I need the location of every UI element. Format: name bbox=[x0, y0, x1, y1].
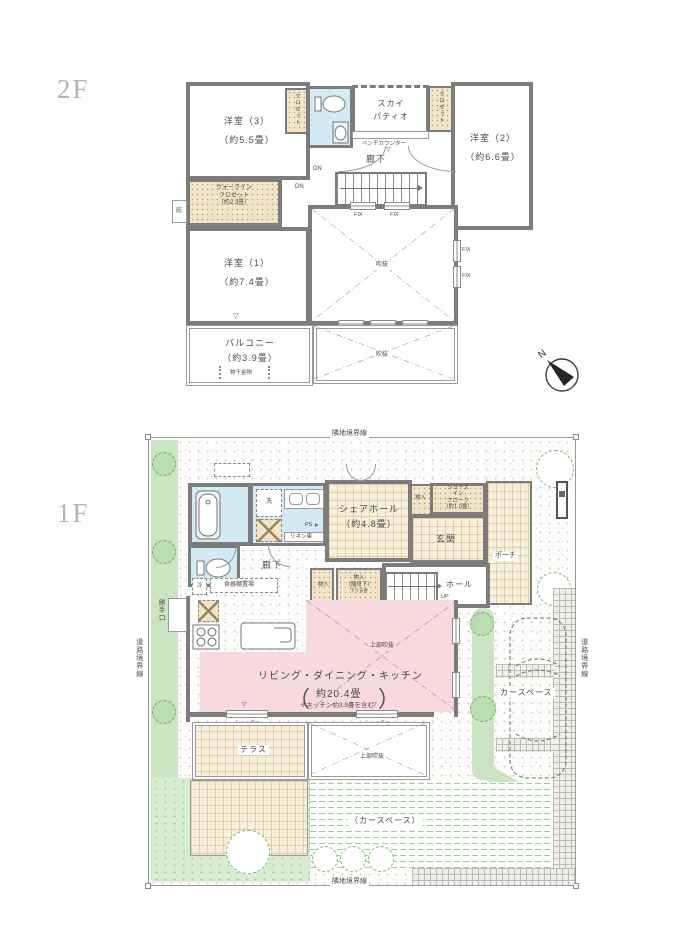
walk-in-closet-label: ウォークイン クロゼット （約2.3畳） bbox=[196, 185, 272, 208]
room-yoshitsu2-size: （約6.6畳） bbox=[458, 152, 528, 163]
laundry-pole-mark bbox=[219, 366, 221, 379]
gate-post bbox=[556, 481, 568, 519]
storage-label: 物入 bbox=[318, 582, 329, 589]
stairs-2f-arrow bbox=[340, 188, 418, 189]
dish-shelf-outline: 食器棚置場 bbox=[210, 578, 278, 593]
room-yoshitsu2-name: 洋室（2） bbox=[458, 133, 528, 144]
sky-patio-line2: パティオ bbox=[360, 112, 422, 122]
stairs-1f bbox=[384, 572, 438, 602]
ldk-name-label: リビング・ダイニング・キッチン bbox=[258, 671, 423, 684]
boundary-label-bottom: 隣地境界線 bbox=[330, 878, 369, 887]
dish-shelf-label: 食器棚置場 bbox=[224, 582, 254, 590]
bathroom bbox=[188, 483, 252, 546]
share-hall-size: （約4.8畳） bbox=[332, 519, 406, 530]
fix-label: FIX bbox=[462, 247, 471, 254]
washbasin-icon-2f bbox=[332, 121, 350, 145]
wic-line2: クロゼット bbox=[196, 193, 272, 201]
bush-tree bbox=[368, 846, 394, 872]
dn-label-2: DN bbox=[295, 184, 304, 192]
eave-box: 庇 bbox=[172, 200, 187, 223]
storage-share-hall: 物入 bbox=[410, 484, 432, 516]
void-upper-label: 吹抜 bbox=[374, 262, 390, 270]
fridge-outline: 冷 bbox=[192, 578, 207, 595]
lowered-ceiling-label: 下り天井 bbox=[339, 588, 379, 593]
window-triangle-2f: ▽ bbox=[233, 313, 238, 322]
bench-triangle-mark: ▽ bbox=[386, 147, 391, 155]
bush bbox=[152, 452, 176, 476]
bush bbox=[152, 700, 176, 724]
fix-window bbox=[384, 202, 410, 210]
bush-tree bbox=[312, 846, 338, 872]
sic-line4: （約1.0畳） bbox=[434, 504, 482, 510]
share-hall-label: シェアホール （約4.8畳） bbox=[332, 504, 406, 531]
wic-line3: （約2.3畳） bbox=[196, 200, 272, 208]
stairs-2f bbox=[335, 172, 427, 206]
washer-label: 洗 bbox=[266, 499, 272, 507]
room-yoshitsu1-name: 洋室（1） bbox=[204, 258, 290, 269]
room-yoshitsu2-label: 洋室（2） （約6.6畳） bbox=[458, 133, 528, 164]
closet-left-label: クロゼット bbox=[293, 93, 300, 126]
ldk-note-label: ※キッチン約3.8畳を含む bbox=[300, 702, 374, 710]
boundary-label-left: 道路境界線 bbox=[134, 638, 143, 678]
vanity-counter bbox=[284, 489, 324, 509]
room-yoshitsu1-label: 洋室（1） （約7.4畳） bbox=[204, 258, 290, 289]
bench-counter bbox=[352, 131, 429, 139]
boundary-corner-marker bbox=[573, 434, 579, 440]
bush bbox=[152, 540, 176, 564]
room-yoshitsu1-size: （約7.4畳） bbox=[204, 277, 290, 288]
linen-cabinet: リネン庫 bbox=[284, 532, 324, 542]
sky-patio-label: スカイ パティオ bbox=[360, 99, 422, 122]
fix-window bbox=[453, 240, 461, 262]
floor-label-2f: 2F bbox=[57, 74, 90, 105]
closet-right: クロゼット bbox=[428, 86, 453, 132]
ps-arrow-icon bbox=[315, 523, 319, 527]
ldk-size-label: 約20.4畳 bbox=[316, 689, 361, 702]
room-yoshitsu3-size: （約5.5畳） bbox=[204, 135, 290, 146]
storage-label: 物入 bbox=[339, 575, 379, 582]
water-heater-outline bbox=[214, 463, 250, 477]
porch-label: ポーチ bbox=[493, 552, 518, 561]
eave-label: 庇 bbox=[176, 208, 182, 216]
tree bbox=[226, 830, 270, 874]
stove-icon bbox=[192, 624, 220, 650]
genkan-label: 玄関 bbox=[436, 534, 456, 545]
storage-under-stairs: 物入 （階段下） 下り天井 bbox=[336, 568, 382, 604]
fix-window bbox=[350, 202, 376, 210]
toilet-icon-2f bbox=[314, 93, 348, 115]
bush bbox=[470, 612, 494, 636]
washroom: 洗 リネン庫 PS bbox=[250, 483, 326, 546]
closet-left: クロゼット bbox=[285, 88, 308, 134]
mailbox-icon bbox=[559, 491, 565, 497]
window-shutter bbox=[226, 710, 268, 718]
car-space-paren-label: （カースペース） bbox=[348, 816, 423, 826]
car-outline-icon bbox=[506, 614, 572, 782]
window bbox=[452, 618, 460, 644]
terrace-void bbox=[308, 722, 430, 780]
bush-tree bbox=[340, 846, 366, 872]
hall-label: ホール bbox=[446, 580, 473, 590]
shoes-in-closet-label: シューズ イン クローク （約1.0畳） bbox=[434, 485, 482, 510]
stairs-2f-arrowhead bbox=[418, 185, 423, 191]
window-triangle: ▽ bbox=[242, 702, 247, 710]
boundary-corner-marker bbox=[145, 883, 151, 889]
door-arc bbox=[338, 146, 386, 172]
kitchen-island-icon bbox=[240, 622, 296, 650]
side-door-landing bbox=[168, 598, 187, 632]
storage-under-stairs-label: 物入 （階段下） 下り天井 bbox=[339, 575, 379, 594]
washer-outline: 洗 bbox=[256, 489, 282, 517]
side-door-label: 勝手口 bbox=[156, 598, 164, 623]
bush bbox=[470, 696, 496, 722]
fix-window bbox=[453, 266, 461, 288]
driveway-tile-bottom bbox=[412, 868, 575, 885]
storage-monoire: 物入 bbox=[310, 568, 334, 604]
laundry-hardware-label: 物干金物 bbox=[230, 370, 252, 377]
void-lower-label: 吹抜 bbox=[374, 352, 390, 360]
linen-label: リネン庫 bbox=[290, 534, 312, 541]
window-shutter bbox=[356, 710, 398, 718]
laundry-pole-mark bbox=[268, 366, 270, 379]
balcony-name: バルコニー bbox=[204, 338, 296, 349]
floor-label-1f: 1F bbox=[57, 498, 90, 529]
stairs-1f-arrow bbox=[388, 586, 438, 587]
storage-hatch-box bbox=[256, 519, 282, 542]
door-arc bbox=[408, 146, 456, 172]
porch bbox=[486, 481, 532, 605]
fix-label: FIX bbox=[462, 273, 471, 280]
share-hall-name: シェアホール bbox=[332, 504, 406, 515]
vanity-bowl bbox=[306, 493, 320, 505]
storage-label: 物入 bbox=[415, 495, 426, 502]
fix-label: FIX bbox=[354, 212, 363, 219]
stairs-1f-arrowhead bbox=[437, 583, 442, 589]
window-triangle: ▽ bbox=[372, 702, 377, 710]
vanity-bowl bbox=[289, 493, 303, 505]
compass-north-label: N bbox=[536, 348, 548, 361]
sky-patio-line1: スカイ bbox=[360, 99, 422, 109]
fix-label: FIX bbox=[390, 212, 399, 219]
open-above-label-terrace: 上部吹抜 bbox=[358, 754, 386, 762]
toilet-room-2f bbox=[307, 86, 353, 148]
boundary-label-top: 隣地境界線 bbox=[330, 430, 369, 439]
balcony-label: バルコニー （約3.9畳） bbox=[204, 338, 296, 365]
floor-plan-page: 2F 洋室（3） （約5.5畳） クロゼット スカイ パティオ クロゼット 洋室… bbox=[0, 0, 700, 940]
dn-label-1: DN bbox=[313, 166, 322, 174]
open-above-label-ldk: 上部吹抜 bbox=[368, 643, 396, 651]
closet-right-label: クロゼット bbox=[437, 91, 444, 124]
terrace-label: テラス bbox=[238, 745, 269, 755]
wic-line1: ウォークイン bbox=[196, 185, 272, 193]
compass-icon: N bbox=[528, 340, 590, 402]
fridge-label: 冷 bbox=[197, 583, 203, 590]
tree bbox=[536, 450, 574, 488]
ps-label: PS bbox=[305, 522, 312, 529]
room-yoshitsu3-name: 洋室（3） bbox=[204, 116, 290, 127]
kitchen-storage-hatch bbox=[198, 600, 219, 622]
bathtub-icon bbox=[195, 490, 221, 540]
car-space-label: カースペース bbox=[498, 688, 555, 698]
window bbox=[452, 672, 460, 698]
terrace-cross-lines bbox=[309, 723, 425, 775]
boundary-label-right: 道路境界線 bbox=[579, 638, 588, 678]
balcony-size: （約3.9畳） bbox=[204, 353, 296, 364]
room-yoshitsu3-label: 洋室（3） （約5.5畳） bbox=[204, 116, 290, 147]
